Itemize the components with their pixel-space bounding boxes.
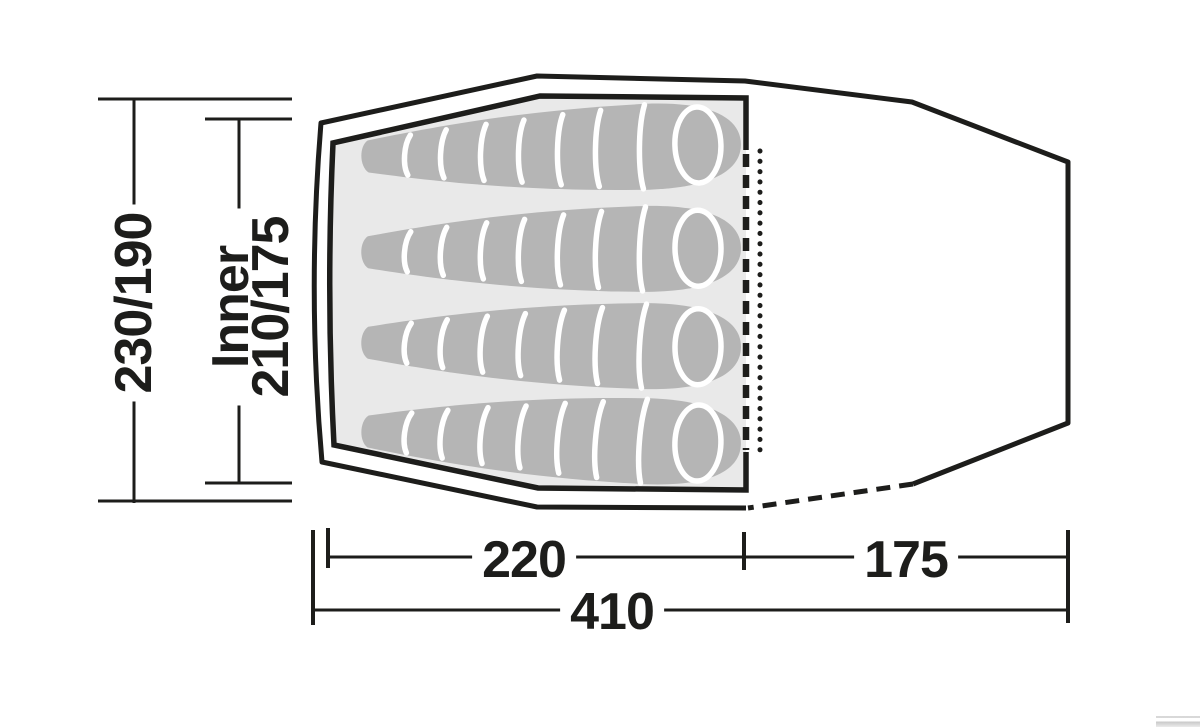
total-length-label: 410 (560, 584, 664, 640)
tent-floor-plan-page: 230/190 Inner 210/175 220 175 410 (0, 0, 1200, 727)
inner-width-label: Inner 210/175 (205, 209, 297, 406)
inner-width-value: 210/175 (251, 217, 291, 398)
outer-width-label: 230/190 (102, 205, 166, 402)
inner-length-label: 220 (472, 532, 576, 588)
vestibule-dashed-edge (748, 484, 913, 508)
corner-artifact (1156, 716, 1200, 727)
vestibule-length-label: 175 (854, 532, 958, 588)
